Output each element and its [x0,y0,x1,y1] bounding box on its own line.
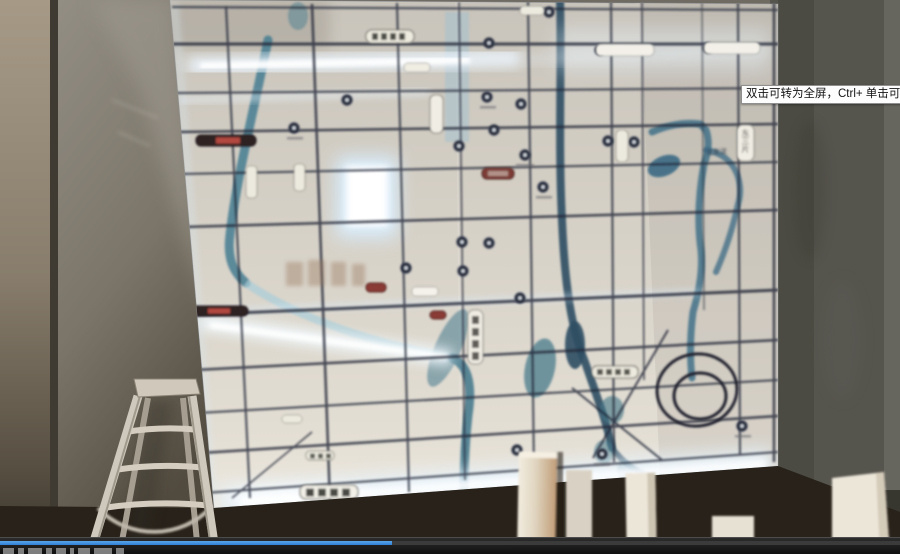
clipped-control-glyphs [3,548,124,554]
map-panel: 东三片 沈发淀 [170,0,778,548]
video-viewport[interactable]: 东三片 沈发淀 [0,0,900,554]
fullscreen-tooltip: 双击可转为全屏，Ctrl+ 单击可转为 [741,85,900,104]
scene-photo: 东三片 沈发淀 [0,0,900,554]
seekbar[interactable] [0,541,900,545]
map-label-east-district-text: 东三片 [741,128,750,154]
player-control-bar [0,537,900,554]
video-player-frame: 东三片 沈发淀 [0,0,900,554]
seekbar-progress [0,541,392,545]
map-label-east-district: 东三片 [737,125,754,161]
